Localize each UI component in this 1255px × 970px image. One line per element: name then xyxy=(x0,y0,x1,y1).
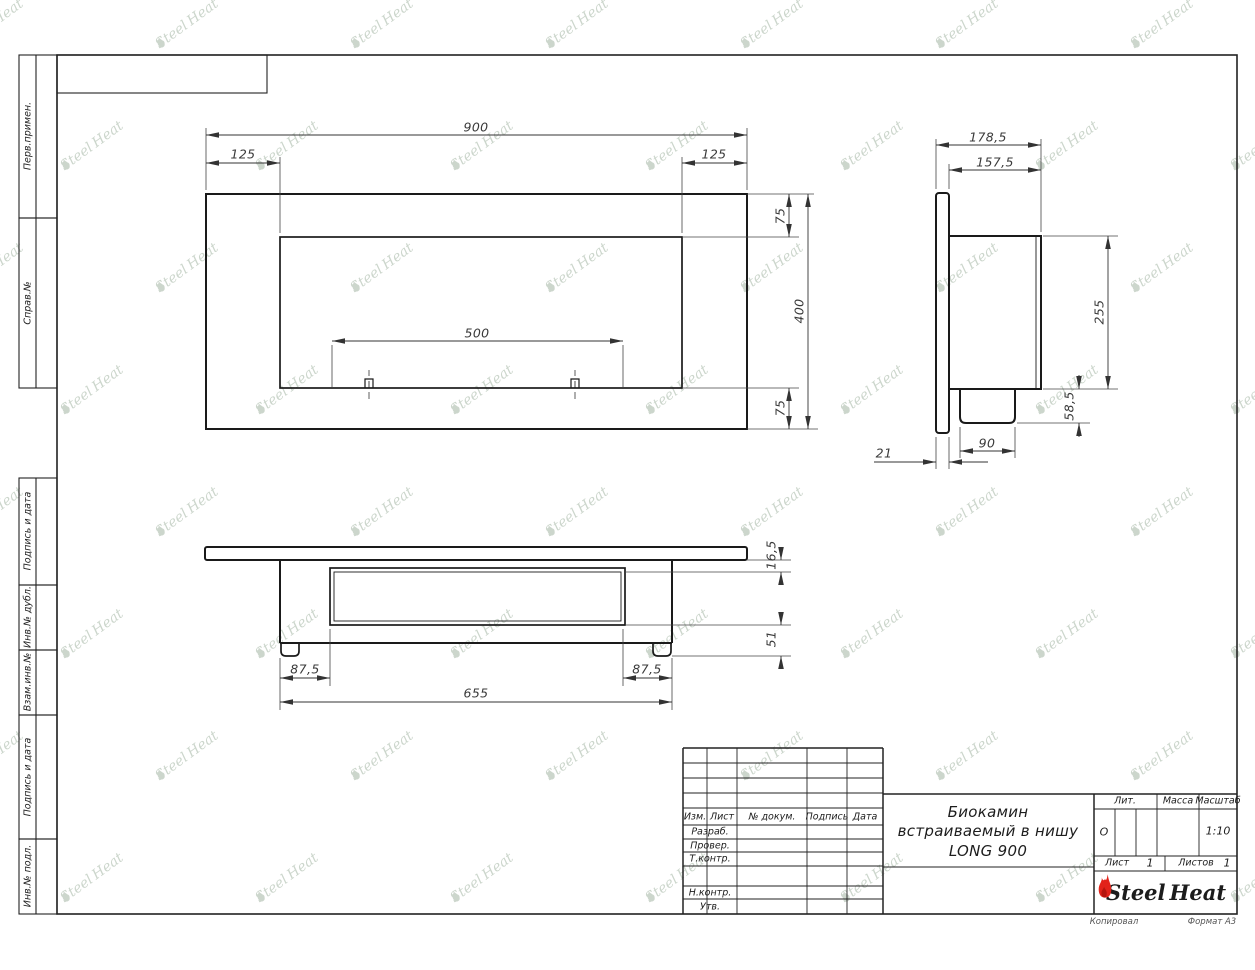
dim-side-inner-depth: 157,5 xyxy=(976,155,1014,170)
dim-front-bottom: 75 xyxy=(773,400,788,417)
margin-label-inv-podl: Инв.№ подл. xyxy=(23,845,34,908)
tb-lit-label: Лит. xyxy=(1114,796,1136,807)
dim-front-offset-left: 125 xyxy=(230,147,255,162)
tb-sheets-value: 1 xyxy=(1224,857,1231,870)
tb-row-nkontr: Н.контр. xyxy=(689,888,732,899)
tb-col-podpis: Подпись xyxy=(806,812,849,823)
margin-label-podpis-data: Подпись и дата xyxy=(23,492,34,571)
tb-col-data: Дата xyxy=(853,812,878,823)
dim-side-depth: 178,5 xyxy=(969,130,1007,145)
side-view xyxy=(874,139,1118,469)
margin-label-podpis-data2: Подпись и дата xyxy=(23,738,34,817)
dim-bottom-inset-left: 87,5 xyxy=(290,662,319,677)
doc-title-line1: Биокамин xyxy=(948,803,1029,821)
tb-row-razrab: Разраб. xyxy=(691,827,728,838)
dim-side-burner-height: 58,5 xyxy=(1062,391,1077,420)
margin-label-inv-dubl: Инв.№ дубл. xyxy=(23,586,34,648)
drawing-sheet: SteelHeatSteelHeatSteelHeatSteelHeatStee… xyxy=(0,0,1255,970)
dim-front-top: 75 xyxy=(773,208,788,225)
dim-bottom-lip: 16,5 xyxy=(764,540,779,569)
dim-front-burner: 500 xyxy=(464,326,489,341)
tb-col-list: Лист xyxy=(710,812,734,823)
margin-label-sprav-no: Справ.№ xyxy=(23,281,34,324)
tb-row-utv: Утв. xyxy=(700,902,720,913)
bottom-view xyxy=(205,547,791,710)
dim-front-height: 400 xyxy=(792,298,807,323)
margin-label-perv-primen: Перв.примен. xyxy=(23,102,34,170)
brand-logo: Steel Heat xyxy=(1096,872,1236,912)
front-view xyxy=(206,128,818,429)
tb-mass-label: Масса xyxy=(1163,796,1193,807)
footer-format-label: Формат А3 xyxy=(1188,917,1236,927)
brand-logo-left: Steel xyxy=(1106,880,1166,905)
doc-title-line3: LONG 900 xyxy=(949,842,1027,860)
brand-logo-right: Heat xyxy=(1170,880,1227,905)
tb-row-prover: Провер. xyxy=(690,841,729,852)
dim-side-burner-width: 90 xyxy=(979,436,996,451)
dim-side-body-height: 255 xyxy=(1092,299,1107,324)
tb-scale-label: Масштаб xyxy=(1195,796,1240,807)
dim-bottom-foot: 51 xyxy=(764,631,779,648)
dim-front-width: 900 xyxy=(463,120,488,135)
dim-side-flange: 21 xyxy=(876,446,893,461)
tb-sheet-label: Лист xyxy=(1105,858,1129,869)
tb-col-izm: Изм. xyxy=(684,812,706,823)
tb-scale-value: 1:10 xyxy=(1206,825,1231,838)
margin-label-vzam-inv: Взам.инв.№ xyxy=(23,653,34,711)
sheet-frame xyxy=(19,55,1237,914)
doc-title-line2: встраиваемый в нишу xyxy=(898,822,1079,840)
dim-bottom-inset-right: 87,5 xyxy=(632,662,661,677)
tb-row-tkontr: Т.контр. xyxy=(689,854,730,865)
dim-bottom-length: 655 xyxy=(463,686,488,701)
tb-lit-value: О xyxy=(1100,826,1109,839)
tb-sheet-value: 1 xyxy=(1147,857,1154,870)
tb-col-ndokum: № докум. xyxy=(749,812,796,823)
footer-copy-label: Копировал xyxy=(1090,917,1139,927)
tb-sheets-label: Листов xyxy=(1178,858,1214,869)
dim-front-offset-right: 125 xyxy=(701,147,726,162)
